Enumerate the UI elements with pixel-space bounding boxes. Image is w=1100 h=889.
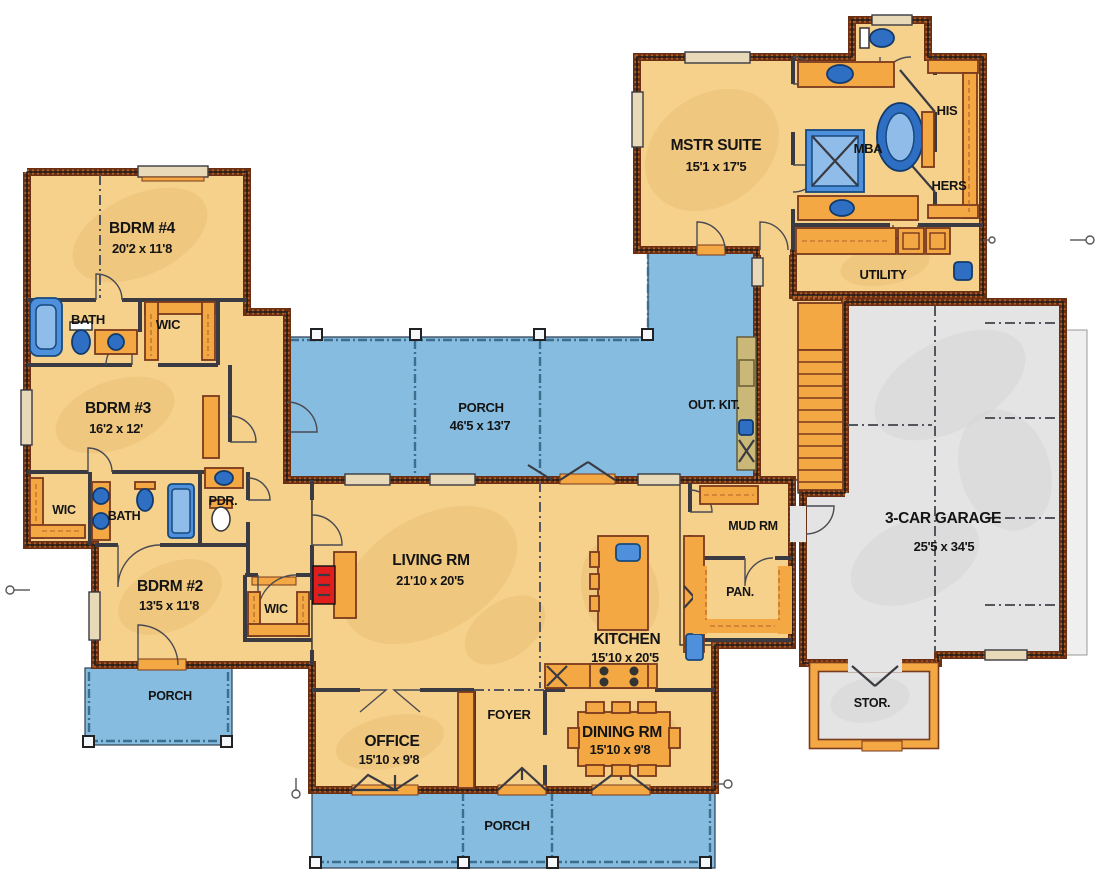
porch-column <box>534 329 545 340</box>
label-dining-dims: 15'10 x 9'8 <box>590 742 651 757</box>
office-closet <box>458 692 474 788</box>
label-garage-dims: 25'5 x 34'5 <box>914 539 975 554</box>
toilet <box>72 330 90 354</box>
stairs <box>798 303 843 490</box>
porch-pier <box>310 857 321 868</box>
label-pan: PAN. <box>726 585 754 599</box>
window <box>21 390 32 445</box>
toilet-tank <box>135 482 155 489</box>
label-kitchen-dims: 15'10 x 20'5 <box>591 650 659 665</box>
label-mstr-suite: MSTR SUITE <box>671 137 762 154</box>
label-mud-rm: MUD RM <box>728 519 778 533</box>
porch-column <box>311 329 322 340</box>
porch-pier <box>83 736 94 747</box>
label-stor: STOR. <box>854 696 890 710</box>
window <box>985 650 1027 660</box>
label-his: HIS <box>937 103 958 118</box>
floor-plan-drawing: MSTR SUITE 15'1 x 17'5 MBA HIS HERS UTIL… <box>0 0 1100 889</box>
label-office: OFFICE <box>364 733 419 750</box>
toilet <box>212 507 230 531</box>
toilet-tank <box>860 28 869 48</box>
label-kitchen: KITCHEN <box>594 631 661 648</box>
window <box>685 52 750 63</box>
label-wic-upper: WIC <box>156 317 181 332</box>
range <box>590 664 648 688</box>
label-foyer: FOYER <box>487 707 531 722</box>
label-bath-upper: BATH <box>71 312 105 327</box>
sink <box>827 65 853 83</box>
sink <box>93 513 109 529</box>
window <box>752 258 763 286</box>
label-bdrm4-dims: 20'2 x 11'8 <box>112 241 172 256</box>
label-porch-bottom: PORCH <box>484 818 529 833</box>
porch-pier <box>700 857 711 868</box>
porch-pier <box>221 736 232 747</box>
label-office-dims: 15'10 x 9'8 <box>359 752 420 767</box>
label-mstr-suite-dims: 15'1 x 17'5 <box>686 159 747 174</box>
porch-column <box>642 329 653 340</box>
label-hers: HERS <box>932 178 968 193</box>
outdoor-kitchen <box>737 337 756 470</box>
sink <box>830 200 854 216</box>
washer <box>898 228 924 254</box>
porch-column <box>410 329 421 340</box>
label-living-dims: 21'10 x 20'5 <box>396 573 464 588</box>
label-out-kit: OUT. KIT. <box>688 398 739 412</box>
island-sink <box>616 544 640 561</box>
label-bdrm4: BDRM #4 <box>109 220 176 237</box>
window <box>138 166 208 177</box>
kitchen-sink <box>686 634 703 660</box>
label-wic-bdrm2: WIC <box>264 602 288 616</box>
vanity <box>798 196 918 220</box>
toilet <box>870 29 894 47</box>
window <box>632 92 643 147</box>
window <box>872 15 912 25</box>
label-utility: UTILITY <box>859 267 907 282</box>
label-bdrm3-dims: 16'2 x 12' <box>89 421 143 436</box>
label-wic-mid: WIC <box>52 503 76 517</box>
label-porch-top-dims: 46'5 x 13'7 <box>450 418 511 433</box>
utility-sink <box>954 262 972 280</box>
window <box>345 474 390 485</box>
label-bdrm2-dims: 13'5 x 11'8 <box>139 598 199 613</box>
label-garage: 3-CAR GARAGE <box>885 510 1001 527</box>
top-porch-floor <box>290 250 755 480</box>
porch-pier <box>458 857 469 868</box>
sink <box>215 471 233 485</box>
bdrm3-closet <box>203 396 219 458</box>
label-bath-mid: BATH <box>108 509 141 523</box>
label-bdrm3: BDRM #3 <box>85 400 152 417</box>
toilet <box>137 489 153 511</box>
window <box>430 474 475 485</box>
label-porch-left: PORCH <box>148 689 192 703</box>
porch-pier <box>547 857 558 868</box>
label-porch-top: PORCH <box>458 400 503 415</box>
label-living: LIVING RM <box>392 552 469 569</box>
window <box>89 592 100 640</box>
sink <box>108 334 124 350</box>
window <box>638 474 680 485</box>
label-mba: MBA <box>854 141 884 156</box>
floor-plan: MSTR SUITE 15'1 x 17'5 MBA HIS HERS UTIL… <box>0 0 1100 889</box>
left-porch-floor <box>85 668 232 745</box>
sink <box>93 488 109 504</box>
outdoor-sink <box>739 420 753 435</box>
label-bdrm2: BDRM #2 <box>137 578 203 595</box>
label-dining: DINING RM <box>582 724 662 741</box>
label-pdr: PDR. <box>209 494 238 508</box>
